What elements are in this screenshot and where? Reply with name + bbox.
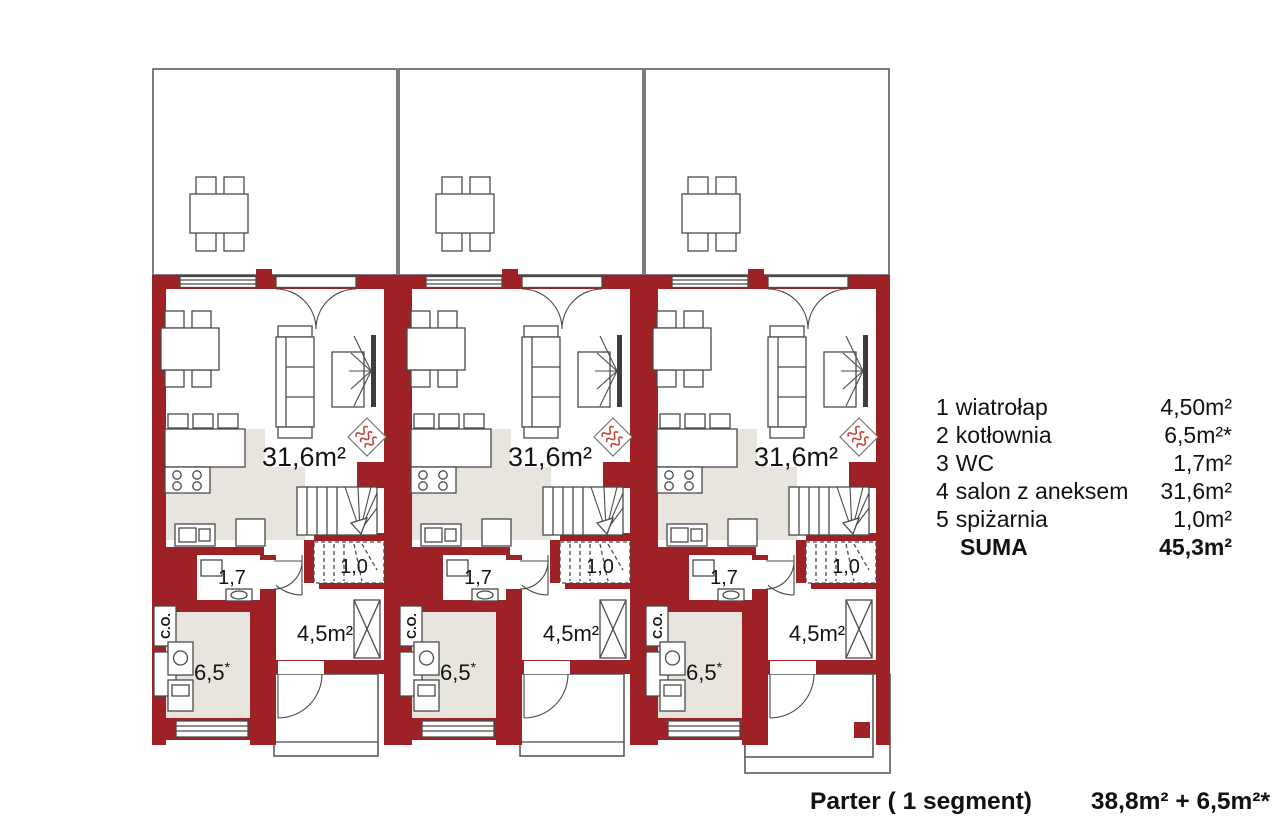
entry-porch-1 (274, 674, 378, 756)
caption: Parter ( 1 segment) 38,8m² + 6,5m²* (810, 788, 1270, 816)
segment-3 (644, 69, 890, 745)
floor-plan-page: { "title": "Parter - rzut (3 segmenty)",… (0, 0, 1280, 822)
legend-total-area: 45,3m² (1159, 534, 1232, 561)
legend-num: 2 (936, 422, 949, 449)
legend-name: kotłownia (956, 422, 1052, 449)
porch-pillar (854, 722, 870, 738)
legend-area: 1,0m² (1173, 506, 1232, 533)
legend-num: 5 (936, 506, 949, 533)
caption-area: 38,8m² + 6,5m²* (1091, 788, 1270, 816)
legend-total-label: SUMA (960, 534, 1028, 561)
legend-area: 4,50m² (1160, 394, 1232, 421)
segment-2 (398, 69, 644, 745)
legend-row: 3 WC 1,7m² (936, 450, 1232, 478)
legend-name: WC (956, 450, 994, 477)
legend-row: 4 salon z aneksem 31,6m² (936, 478, 1232, 506)
legend-area: 1,7m² (1173, 450, 1232, 477)
legend-name: spiżarnia (956, 506, 1048, 533)
legend-row: 1 wiatrołap 4,50m² (936, 394, 1232, 422)
segment-1 (152, 69, 398, 745)
legend-num: 4 (936, 478, 949, 505)
legend-row: 2 kotłownia 6,5m²* (936, 422, 1232, 450)
entry-porch-2 (520, 674, 624, 756)
legend-num: 3 (936, 450, 949, 477)
legend-area: 31,6m² (1160, 478, 1232, 505)
legend-row: 5 spiżarnia 1,0m² (936, 506, 1232, 534)
legend-name: wiatrołap (956, 394, 1048, 421)
legend-total-row: SUMA 45,3m² (936, 534, 1232, 562)
legend-name: salon z aneksem (956, 478, 1129, 505)
caption-title: Parter ( 1 segment) (810, 788, 1032, 816)
legend: 1 wiatrołap 4,50m² 2 kotłownia 6,5m²* 3 … (936, 394, 1232, 562)
legend-area: 6,5m²* (1164, 422, 1232, 449)
legend-num: 1 (936, 394, 949, 421)
